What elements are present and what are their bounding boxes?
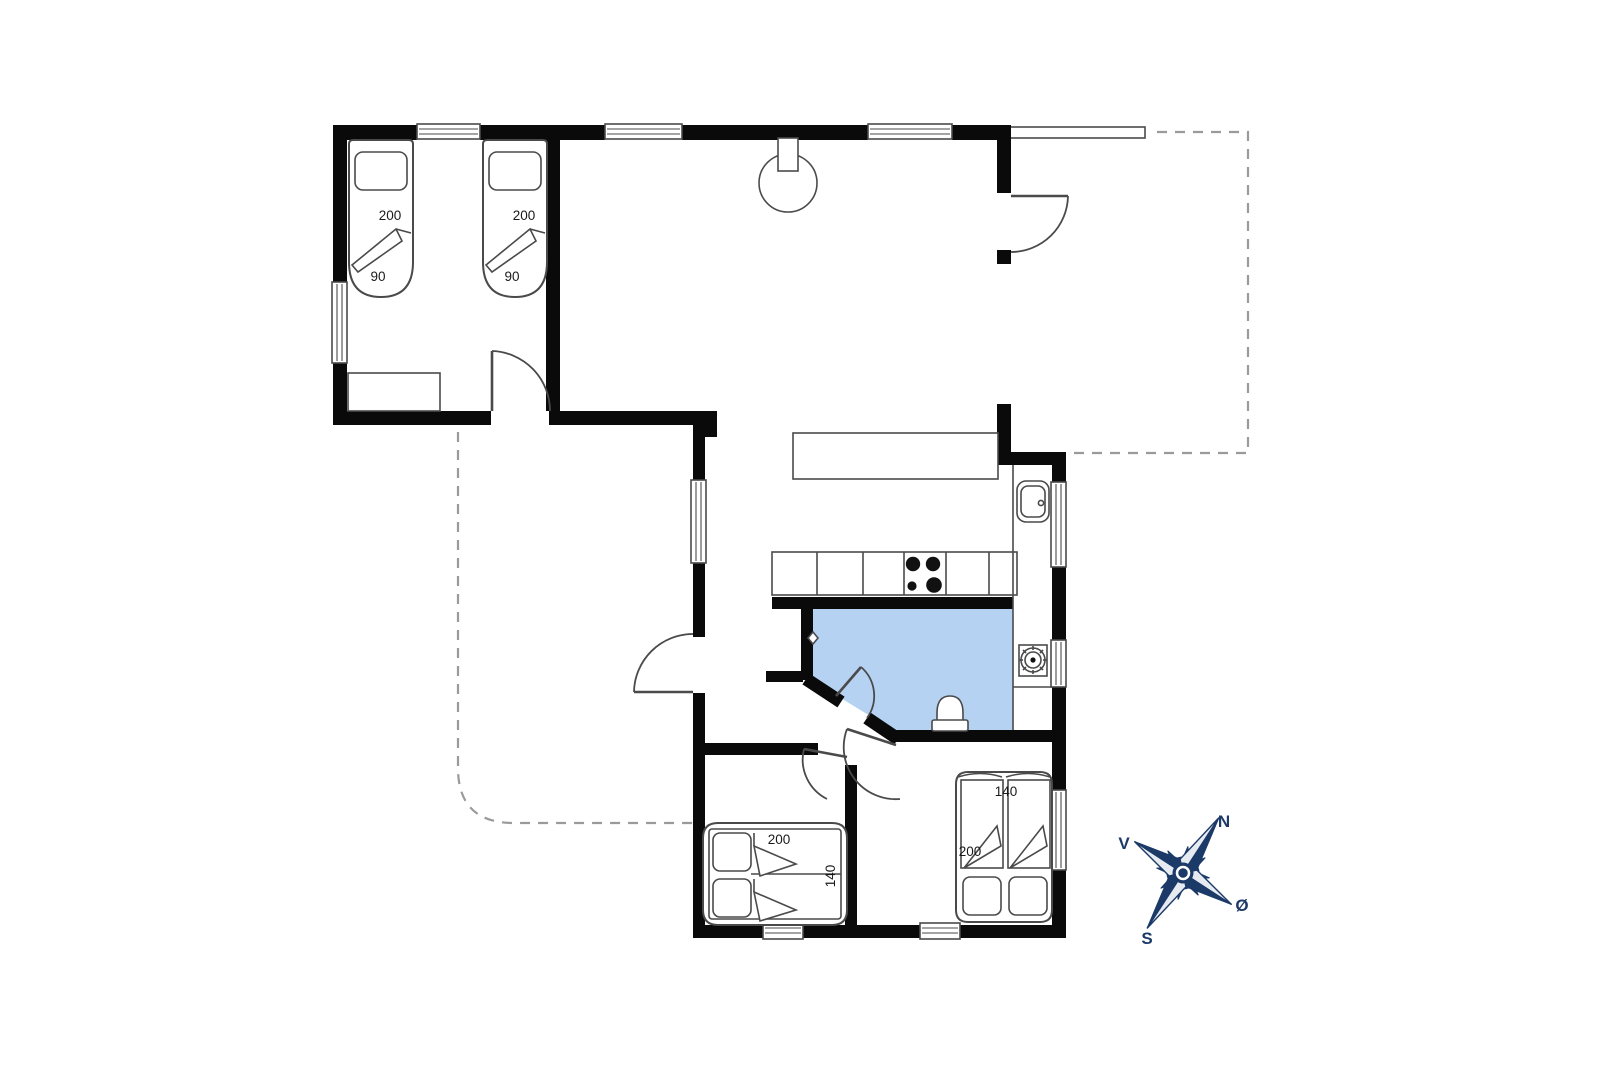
door-bedroom-bottom-left bbox=[803, 749, 847, 799]
bed-length-label: 200 bbox=[379, 208, 402, 223]
terrace-outline-west bbox=[458, 432, 700, 823]
compass-rose: N Ø S V bbox=[1098, 786, 1267, 960]
floor-plan-drawing: 200 90 200 90 200 140 140 200 bbox=[0, 0, 1600, 1066]
pillow bbox=[1009, 877, 1047, 915]
window bbox=[691, 480, 706, 563]
terrace-outline-east bbox=[1071, 132, 1248, 453]
window bbox=[332, 282, 347, 363]
pillow bbox=[963, 877, 1001, 915]
door-bedroom-top-left bbox=[492, 351, 550, 411]
living-room-items bbox=[759, 138, 998, 479]
floor-plan-canvas: 200 90 200 90 200 140 140 200 bbox=[0, 0, 1600, 1066]
compass-label-west: V bbox=[1118, 834, 1130, 853]
window bbox=[920, 923, 960, 939]
sink-icon bbox=[1017, 481, 1049, 522]
window bbox=[1051, 790, 1066, 870]
pergola-beam bbox=[1010, 127, 1145, 138]
bed-width-label: 140 bbox=[823, 865, 838, 888]
bathroom-floor bbox=[808, 607, 1013, 730]
bed-width-label: 140 bbox=[995, 784, 1018, 799]
bed-width-label: 90 bbox=[504, 269, 519, 284]
wardrobe bbox=[348, 373, 440, 411]
door-hall-west bbox=[634, 634, 693, 692]
window bbox=[417, 124, 480, 139]
water-heater-icon bbox=[1019, 645, 1047, 676]
compass-label-south: S bbox=[1141, 929, 1152, 948]
kitchen-counter bbox=[772, 552, 1017, 595]
compass-label-north: N bbox=[1218, 812, 1230, 831]
bed-length-label: 200 bbox=[959, 844, 982, 859]
bed-length-label: 200 bbox=[768, 832, 791, 847]
bed-width-label: 90 bbox=[370, 269, 385, 284]
window bbox=[1051, 482, 1066, 567]
window bbox=[605, 124, 682, 139]
window bbox=[868, 124, 952, 139]
door-entrance-east bbox=[1011, 196, 1068, 252]
fireplace-flue bbox=[778, 138, 798, 171]
compass-label-east: Ø bbox=[1235, 896, 1248, 915]
window bbox=[1051, 640, 1066, 687]
toilet-cistern bbox=[932, 720, 968, 731]
pillow bbox=[713, 879, 751, 917]
pillow bbox=[355, 152, 407, 190]
dining-counter bbox=[793, 433, 998, 479]
bed-length-label: 200 bbox=[513, 208, 536, 223]
pillow bbox=[713, 833, 751, 871]
